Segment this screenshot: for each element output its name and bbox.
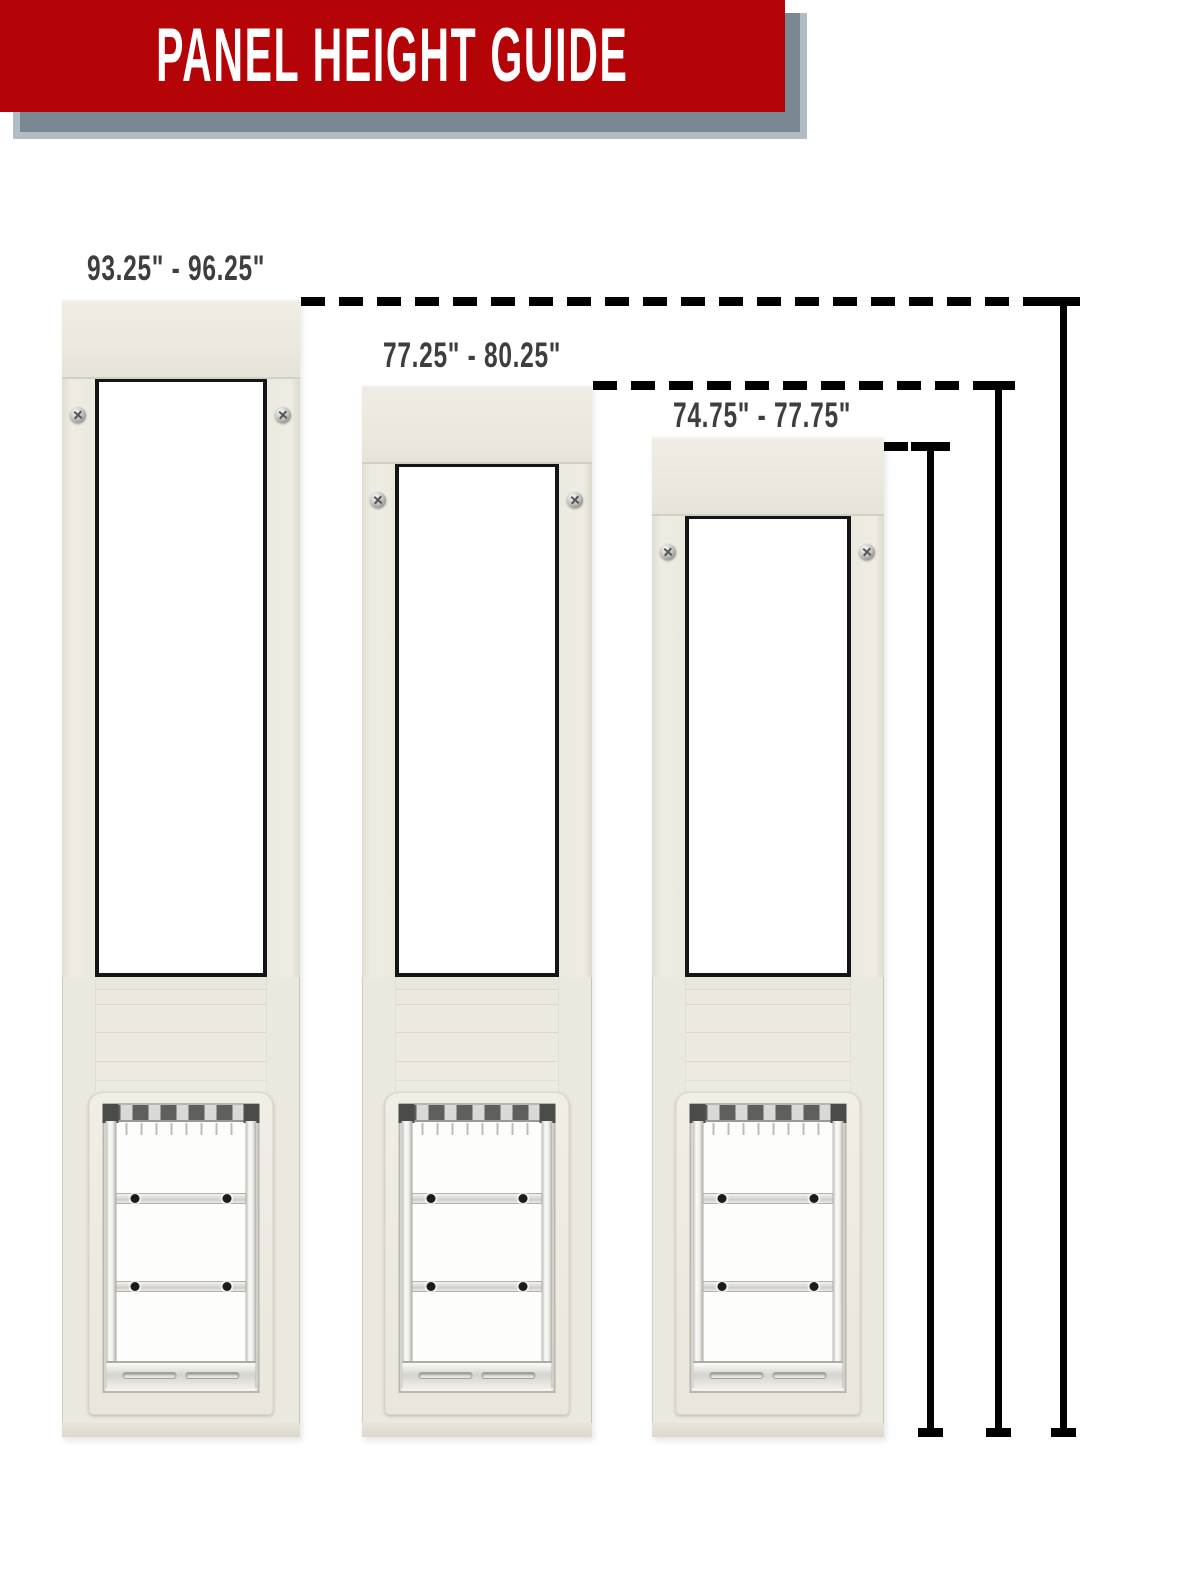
magnet-dot-icon <box>810 1194 819 1203</box>
measure-cap-bottom-tall <box>1051 1428 1076 1437</box>
vertical-measure-line-medium <box>995 381 1002 1437</box>
bottom-bar-slot <box>773 1372 827 1379</box>
vertical-measure-line-tall <box>1060 297 1067 1437</box>
screw-icon <box>859 544 875 560</box>
magnet-dot-icon <box>131 1194 140 1203</box>
flap-side-rail <box>693 1121 704 1388</box>
screw-icon <box>567 492 583 508</box>
magnet-dot-icon <box>427 1194 436 1203</box>
bottom-bar-slot <box>419 1372 473 1379</box>
magnet-dot-icon <box>223 1194 232 1203</box>
groove-lines <box>395 977 559 1092</box>
panel-medium <box>362 385 592 1437</box>
flap-crossbar <box>703 1281 834 1292</box>
pet-door-section <box>62 1092 300 1437</box>
measure-cap-top-tall <box>1047 297 1080 306</box>
flap-crossbar <box>116 1281 247 1292</box>
flap-side-rail <box>833 1121 844 1388</box>
flap-bottom-bar <box>694 1361 843 1389</box>
magnet-dot-icon <box>223 1282 232 1291</box>
flap-crossbar <box>412 1193 543 1204</box>
vertical-measure-line-short <box>927 442 934 1437</box>
panel-tall <box>62 300 300 1437</box>
window-glass <box>395 464 559 977</box>
pet-door-opening <box>399 1103 556 1393</box>
measure-cap-top-short <box>911 442 950 451</box>
flap-side-rail <box>402 1121 413 1388</box>
pet-door-section <box>362 1092 592 1437</box>
bottom-bar-slot <box>482 1372 536 1379</box>
flap-bottom-bar <box>403 1361 552 1389</box>
flap-side-rail <box>246 1121 257 1388</box>
magnet-dot-icon <box>519 1282 528 1291</box>
pet-door-section <box>652 1092 884 1437</box>
flap-side-rail <box>106 1121 117 1388</box>
bottom-bar-slot <box>123 1372 177 1379</box>
panel-window-zone <box>362 464 592 977</box>
flap-hinge-teeth <box>407 1123 548 1135</box>
panel-groove-section <box>62 977 300 1092</box>
pet-door-frame <box>385 1092 570 1415</box>
screw-icon <box>370 492 386 508</box>
screw-icon <box>275 407 291 423</box>
magnet-dot-icon <box>810 1282 819 1291</box>
pet-door-opening <box>690 1103 847 1393</box>
flap-crossbar <box>116 1193 247 1204</box>
groove-lines <box>685 977 851 1092</box>
panel-groove-section <box>362 977 592 1092</box>
flap-side-rail <box>542 1121 553 1388</box>
groove-lines <box>95 977 267 1092</box>
height-range-label-short: 74.75" - 77.75" <box>673 396 851 436</box>
pet-door-frame <box>676 1092 861 1415</box>
magnet-dot-icon <box>131 1282 140 1291</box>
panel-top-block <box>362 385 592 464</box>
dashed-measure-line-short <box>884 442 914 451</box>
screw-icon <box>660 544 676 560</box>
page-title: PANEL HEIGHT GUIDE <box>156 18 628 94</box>
panel-window-zone <box>62 379 300 977</box>
dashed-measure-line-tall <box>301 297 1052 306</box>
window-glass <box>95 379 267 977</box>
screw-icon <box>70 407 86 423</box>
dashed-measure-line-medium <box>593 381 985 390</box>
header-banner: PANEL HEIGHT GUIDE <box>0 0 785 112</box>
pet-door-frame <box>89 1092 274 1415</box>
magnet-dot-icon <box>427 1282 436 1291</box>
height-range-label-medium: 77.25" - 80.25" <box>383 336 561 376</box>
flap-hinge-teeth <box>111 1123 252 1135</box>
window-glass <box>685 516 851 977</box>
magnet-dot-icon <box>718 1282 727 1291</box>
flap-crossbar <box>412 1281 543 1292</box>
panel-height-guide: PANEL HEIGHT GUIDE 93.25" - 96.25" 77.25… <box>0 0 1180 1573</box>
measure-cap-top-medium <box>982 381 1015 390</box>
flap-bottom-bar <box>107 1361 256 1389</box>
bottom-bar-slot <box>186 1372 240 1379</box>
panel-top-block <box>652 437 884 516</box>
flap-hinge-bar <box>401 1105 554 1122</box>
flap-hinge-bar <box>692 1105 845 1122</box>
height-range-label-tall: 93.25" - 96.25" <box>87 249 265 289</box>
bottom-bar-slot <box>710 1372 764 1379</box>
flap-crossbar <box>703 1193 834 1204</box>
panel-short <box>652 437 884 1437</box>
panel-groove-section <box>652 977 884 1092</box>
flap-hinge-teeth <box>698 1123 839 1135</box>
magnet-dot-icon <box>718 1194 727 1203</box>
measure-cap-bottom-medium <box>986 1428 1011 1437</box>
magnet-dot-icon <box>519 1194 528 1203</box>
measure-cap-bottom-short <box>918 1428 943 1437</box>
panel-window-zone <box>652 516 884 977</box>
pet-door-opening <box>103 1103 260 1393</box>
panel-top-block <box>62 300 300 379</box>
flap-hinge-bar <box>105 1105 258 1122</box>
